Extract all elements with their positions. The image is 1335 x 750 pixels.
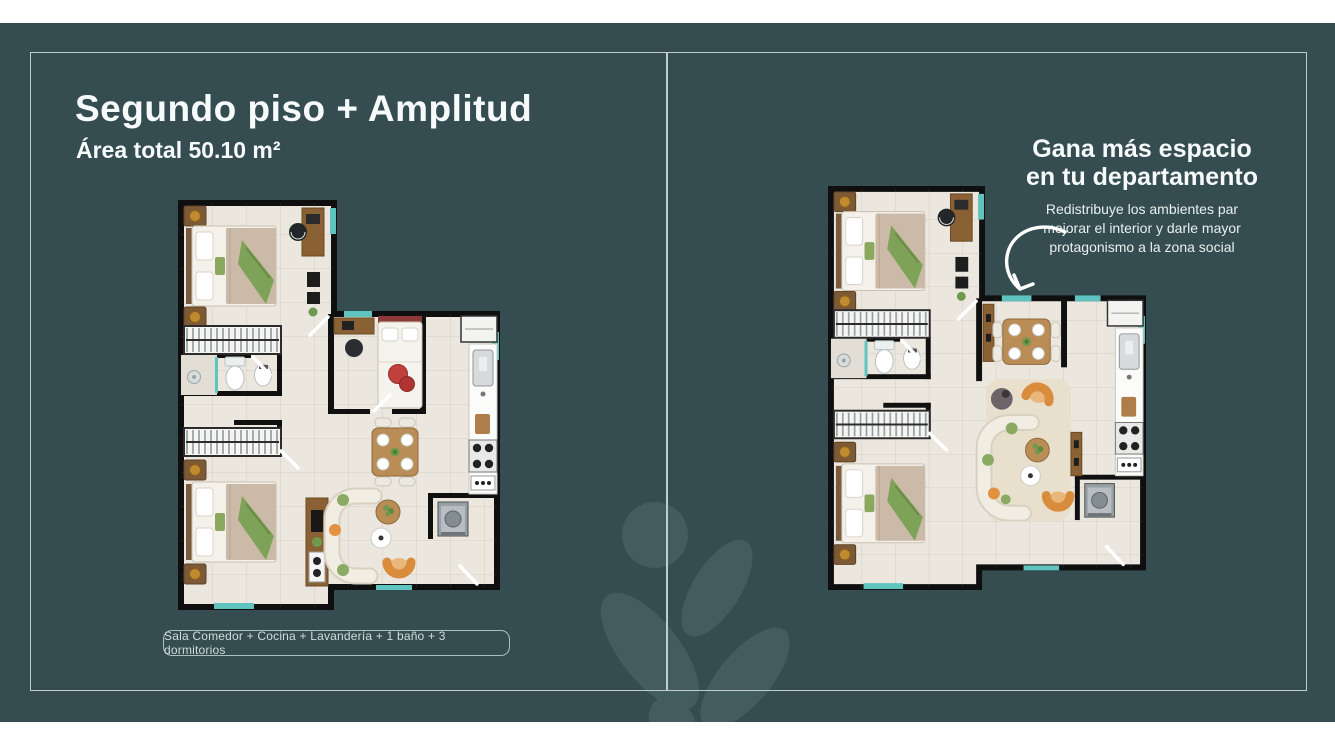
nightstand-icon — [184, 564, 206, 584]
floorplan-redistributed — [828, 186, 1146, 592]
wardrobe-icon — [184, 326, 281, 354]
dining-table-icon — [993, 319, 1060, 364]
nightstand-icon — [834, 192, 856, 212]
nightstand-icon — [184, 307, 206, 327]
nightstand-icon — [834, 442, 856, 462]
features-badge: Sala Comedor + Cocina + Lavandería + 1 b… — [163, 630, 510, 656]
single-bed-icon — [378, 316, 422, 408]
washing-machine-icon — [1085, 484, 1115, 518]
double-bed-icon — [186, 482, 276, 562]
lamp-table-icon — [991, 388, 1013, 410]
panel-divider — [666, 52, 668, 691]
nightstand-icon — [184, 206, 206, 226]
slide-background: Segundo piso + Amplitud Área total 50.10… — [0, 23, 1335, 722]
page-title: Segundo piso + Amplitud — [75, 88, 532, 130]
wardrobe-icon — [834, 310, 930, 338]
double-bed-icon — [836, 212, 925, 291]
nightstand-icon — [184, 460, 206, 480]
wardrobe-icon — [834, 411, 930, 439]
dining-table-icon — [372, 418, 418, 486]
armchair-icon — [387, 558, 411, 574]
brochure-page: Segundo piso + Amplitud Área total 50.10… — [0, 0, 1335, 750]
nightstand-icon — [834, 545, 856, 565]
area-subtitle: Área total 50.10 m² — [76, 137, 281, 164]
wardrobe-icon — [184, 428, 281, 456]
armchair-icon — [1046, 491, 1070, 507]
sideboard-icon — [1071, 432, 1082, 475]
nightstand-icon — [834, 291, 856, 311]
floorplan-original — [178, 200, 500, 612]
double-bed-icon — [186, 226, 276, 306]
sideboard-icon — [983, 304, 994, 361]
right-heading-line1: Gana más espacio — [1008, 135, 1276, 163]
washing-machine-icon — [438, 502, 468, 536]
double-bed-icon — [836, 464, 925, 543]
